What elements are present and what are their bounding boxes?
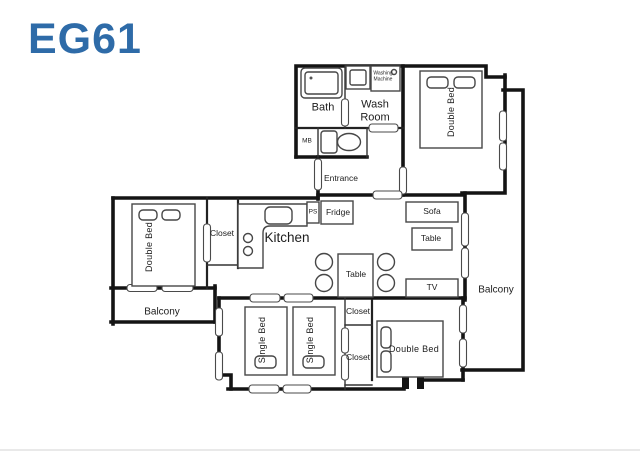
label-kitchen: Kitchen (264, 230, 309, 246)
label-bedroom-left: Double Bed (144, 222, 154, 272)
dining-chair-icon (316, 275, 333, 292)
label-entrance: Entrance (324, 174, 358, 184)
label-single-bed-1: Single Bed (257, 317, 267, 364)
label-bath: Bath (312, 102, 335, 115)
stove-burner-icon (244, 247, 253, 256)
pillow-icon (162, 210, 180, 220)
label-single-bed-2: Single Bed (305, 317, 315, 364)
label-fridge: Fridge (326, 208, 350, 218)
double-bed-left-icon (132, 204, 195, 286)
bathtub-icon (301, 68, 342, 98)
kitchen-sink-icon (265, 207, 292, 224)
label-sofa-table: Table (421, 234, 441, 244)
label-bedroom-top-right: Double Bed (446, 87, 456, 137)
dining-chair-icon (378, 254, 395, 271)
pillow-icon (454, 77, 475, 88)
pillow-icon (139, 210, 157, 220)
label-ps: PS (309, 208, 318, 215)
label-closet-lower: Closet (346, 353, 370, 363)
label-closet-upper: Closet (346, 307, 370, 317)
label-balcony-right: Balcony (478, 284, 514, 296)
label-balcony-left: Balcony (144, 306, 180, 318)
dining-chair-icon (316, 254, 333, 271)
label-wash-room: Wash Room (353, 98, 397, 123)
floor-plan-page: EG61 (0, 0, 640, 451)
label-washing-machine: Washing Machine (372, 71, 394, 83)
label-sofa: Sofa (423, 207, 441, 217)
dining-chair-icon (378, 275, 395, 292)
toilet-icon (321, 131, 361, 153)
label-tv: TV (427, 283, 438, 293)
label-dining-table: Table (346, 270, 366, 280)
label-mb: MB (302, 137, 312, 144)
label-hall-closet: Closet (210, 229, 234, 239)
wash-basin-icon (346, 66, 370, 89)
label-bedroom-bottom-right: Double Bed (389, 344, 439, 354)
floor-plan-drawing (0, 0, 640, 451)
stove-burner-icon (244, 234, 253, 243)
